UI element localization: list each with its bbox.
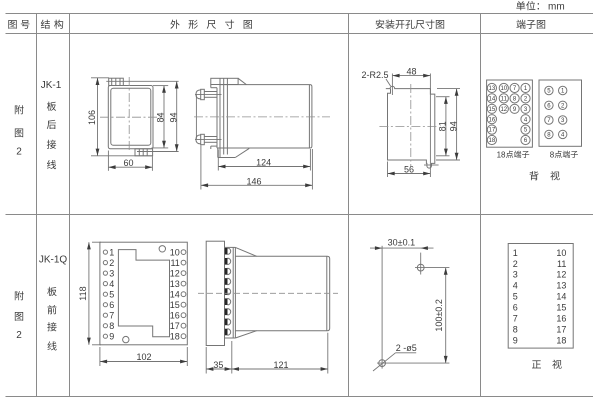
- svg-text:1: 1: [513, 248, 518, 258]
- svg-text:3: 3: [513, 270, 518, 280]
- svg-text:56: 56: [404, 164, 414, 174]
- svg-text:JK-1: JK-1: [41, 80, 62, 91]
- svg-text:13: 13: [489, 86, 496, 92]
- svg-text:11: 11: [170, 258, 179, 268]
- svg-text:10: 10: [556, 248, 566, 258]
- svg-text:8: 8: [109, 321, 114, 331]
- svg-text:12: 12: [500, 107, 507, 113]
- svg-text:1: 1: [524, 86, 528, 92]
- svg-text:124: 124: [256, 157, 271, 167]
- svg-text:3: 3: [109, 268, 114, 278]
- svg-text:102: 102: [136, 352, 151, 362]
- svg-text:JK-1Q: JK-1Q: [39, 255, 68, 266]
- svg-text:1: 1: [561, 89, 565, 95]
- svg-text:2: 2: [561, 103, 565, 109]
- svg-text:17: 17: [556, 325, 566, 335]
- svg-text:15: 15: [170, 300, 180, 310]
- svg-text:5: 5: [513, 292, 518, 302]
- svg-text:10: 10: [170, 247, 180, 257]
- svg-text:2: 2: [16, 330, 22, 341]
- svg-text:106: 106: [87, 110, 97, 125]
- svg-text:18: 18: [556, 335, 566, 345]
- svg-text:48: 48: [406, 66, 416, 76]
- svg-text:13: 13: [170, 279, 180, 289]
- svg-text:146: 146: [246, 176, 261, 186]
- svg-text:7: 7: [547, 118, 551, 124]
- svg-text:16: 16: [556, 314, 566, 324]
- svg-text:84: 84: [156, 112, 166, 122]
- svg-text:14: 14: [556, 292, 566, 302]
- svg-text:9: 9: [513, 107, 517, 113]
- svg-text:2: 2: [16, 147, 22, 158]
- svg-text:3: 3: [524, 107, 528, 113]
- svg-text:4: 4: [561, 133, 565, 139]
- svg-text:15: 15: [489, 107, 496, 113]
- svg-text:6: 6: [109, 300, 114, 310]
- svg-text:13: 13: [556, 281, 566, 291]
- svg-text:4: 4: [513, 281, 518, 291]
- svg-text:35: 35: [213, 360, 223, 370]
- svg-text:mm: mm: [548, 2, 565, 13]
- svg-text:9: 9: [109, 331, 114, 341]
- svg-text:4: 4: [524, 117, 528, 123]
- svg-text:16: 16: [489, 117, 496, 123]
- svg-text:12: 12: [170, 268, 180, 278]
- svg-text:60: 60: [123, 158, 133, 168]
- svg-text:12: 12: [556, 270, 566, 280]
- svg-text:3: 3: [561, 118, 565, 124]
- svg-text:18: 18: [497, 150, 506, 159]
- svg-text:2: 2: [524, 97, 528, 103]
- svg-text:2 -ø5: 2 -ø5: [396, 343, 417, 353]
- svg-text:5: 5: [547, 89, 551, 95]
- svg-text:7: 7: [109, 310, 114, 320]
- svg-text:14: 14: [170, 289, 180, 299]
- svg-text:15: 15: [556, 303, 566, 313]
- svg-text:2: 2: [513, 259, 518, 269]
- svg-text:6: 6: [513, 303, 518, 313]
- svg-text:94: 94: [448, 121, 458, 131]
- svg-text:118: 118: [78, 286, 88, 300]
- svg-text:14: 14: [489, 97, 496, 103]
- svg-text:100±0.2: 100±0.2: [434, 299, 444, 331]
- svg-text:5: 5: [109, 289, 114, 299]
- svg-text:18: 18: [489, 138, 496, 144]
- svg-text:8: 8: [513, 325, 518, 335]
- svg-text:6: 6: [547, 103, 551, 109]
- svg-text:1: 1: [109, 247, 114, 257]
- svg-text:5: 5: [524, 128, 528, 134]
- svg-text:8: 8: [550, 150, 555, 159]
- svg-text:6: 6: [524, 138, 528, 144]
- svg-text:2: 2: [109, 258, 114, 268]
- svg-text:121: 121: [273, 360, 288, 370]
- svg-text:18: 18: [170, 331, 180, 341]
- svg-text:30±0.1: 30±0.1: [388, 237, 415, 247]
- svg-text:11: 11: [501, 97, 508, 103]
- svg-text:2-R2.5: 2-R2.5: [362, 70, 389, 80]
- svg-text:16: 16: [170, 310, 180, 320]
- svg-text:17: 17: [489, 128, 496, 134]
- svg-text:81: 81: [437, 121, 447, 131]
- svg-text:9: 9: [513, 335, 518, 345]
- svg-text:4: 4: [109, 279, 114, 289]
- svg-text:7: 7: [513, 314, 518, 324]
- svg-text:10: 10: [500, 86, 507, 92]
- svg-text:11: 11: [557, 259, 566, 269]
- svg-text:94: 94: [168, 112, 178, 122]
- svg-text:8: 8: [547, 133, 551, 139]
- svg-text:7: 7: [513, 86, 517, 92]
- svg-text:8: 8: [513, 97, 517, 103]
- svg-text:17: 17: [170, 321, 180, 331]
